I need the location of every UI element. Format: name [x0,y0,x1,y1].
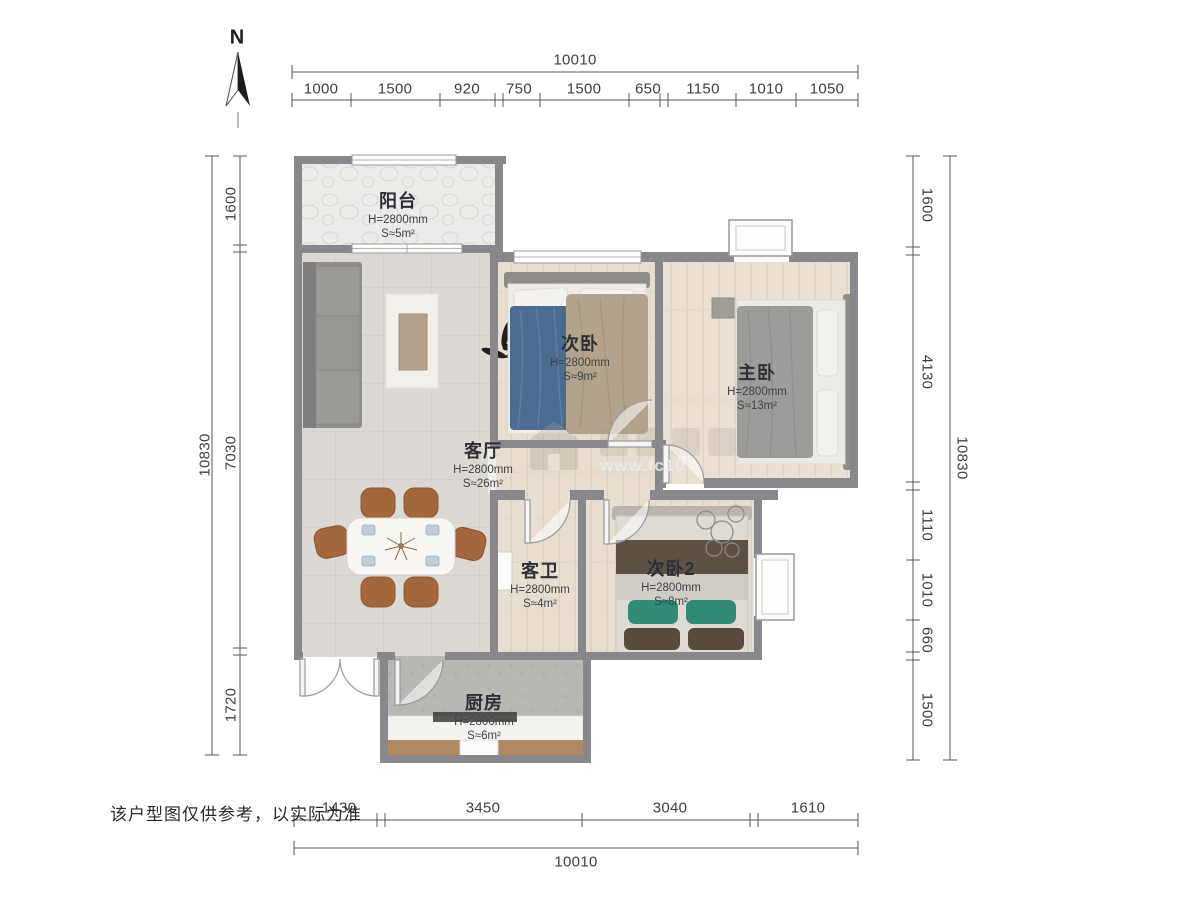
floorplan-page: N 10010 1000 1500 920 750 1500 650 1150 … [0,0,1200,900]
dim-top-total: 10010 [553,52,596,69]
balcony-sliding-door [352,244,462,253]
room-label-bedroom2: 次卧 H=2800mm S≈9m² [550,333,610,384]
entry-double-door [300,659,379,696]
sofa [303,262,362,428]
dim-right-seg: 1010 [919,573,936,608]
room-label-living: 客厅 H=2800mm S≈26m² [453,440,513,491]
room-label-balcony: 阳台 H=2800mm S≈5m² [368,190,428,241]
dim-top-seg: 1150 [686,81,719,98]
dim-right-seg: 1500 [919,693,936,728]
dim-top-seg: 1010 [749,81,784,98]
room-label-bath: 客卫 H=2800mm S≈4m² [510,560,570,611]
dim-left-seg: 7030 [223,436,240,471]
dim-bottom-total: 10010 [554,854,597,871]
dim-top-seg: 650 [635,81,661,98]
dim-right-seg: 4130 [919,355,936,390]
north-label: N [230,27,244,50]
dim-top-seg: 920 [454,81,480,98]
master-bay-window [729,220,792,262]
dim-top-seg: 750 [506,81,532,98]
watermark-url: www.fc10 [600,456,686,476]
dim-top-seg: 1500 [567,81,602,98]
dim-right-seg: 660 [919,627,936,653]
disclaimer-text: 该户型图仅供参考，以实际为准 [110,800,362,825]
dim-bottom-seg: 3040 [653,800,688,817]
dim-bottom-seg: 1610 [791,800,826,817]
floorplan-drawing [0,0,1200,900]
dim-left-seg: 1720 [223,688,240,723]
bedroom3-bay-window [754,554,794,620]
dim-left-total: 10830 [197,433,214,476]
bedroom2-window [514,251,641,263]
dim-top-seg: 1500 [378,81,413,98]
dim-top-seg: 1050 [810,81,845,98]
coffee-table [386,294,438,388]
dim-right-seg: 1110 [919,509,936,541]
dim-left-seg: 1600 [223,187,240,222]
dim-bottom-seg: 3450 [466,800,501,817]
balcony-top-window [352,155,456,165]
north-arrow [226,52,250,128]
room-label-bedroom3: 次卧2 H=2800mm S≈8m² [641,558,701,609]
dim-top-seg: 1000 [304,81,339,98]
room-label-master: 主卧 H=2800mm S≈13m² [727,362,787,413]
room-label-kitchen: 厨房 H=2800mm S≈6m² [454,692,514,743]
dim-right-total: 10830 [954,436,971,479]
dim-right-seg: 1600 [919,188,936,223]
